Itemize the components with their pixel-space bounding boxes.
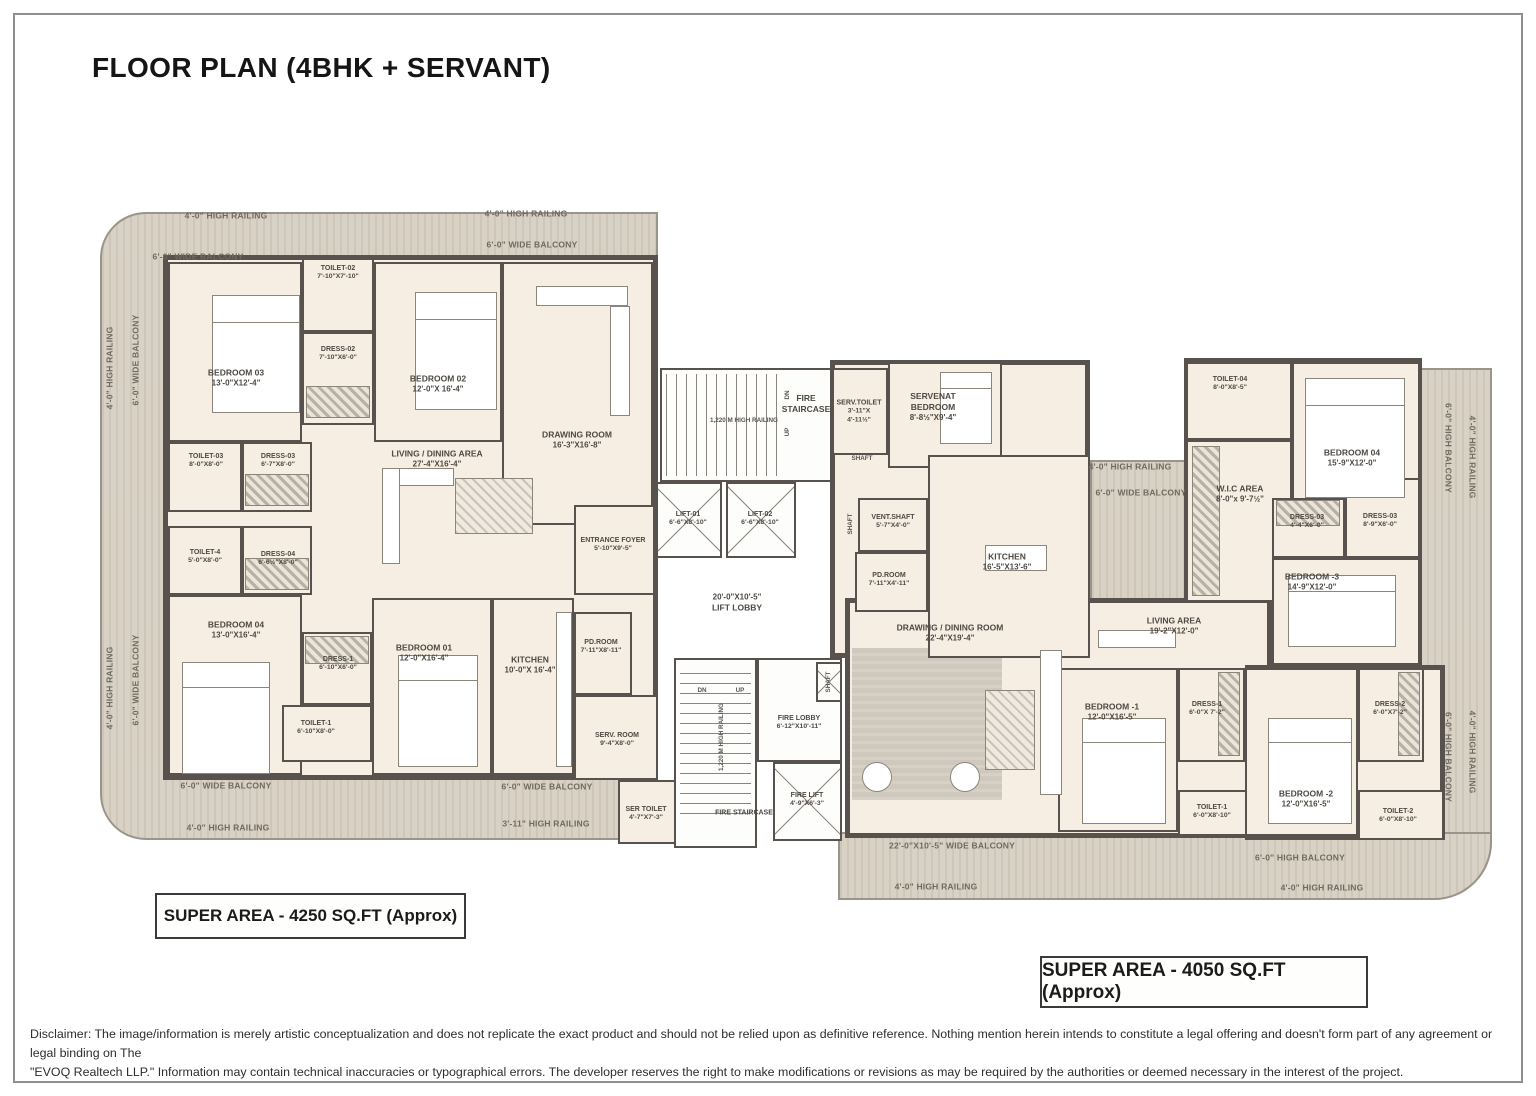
label-right-toilet-1: TOILET-16'-0"X8'-10" [1193,803,1231,821]
label-balcony-bottom-mid: 6'-0" WIDE BALCONY [502,781,593,792]
label-right-drawing-dining: DRAWING / DINING ROOM22'-4"X19'-4" [897,622,1004,643]
label-left-dress-04: DRESS-046'-6½"X8'-0" [258,550,298,568]
label-left-toilet-1: TOILET-16'-10"X8'-0" [297,719,335,737]
label-railing-top-mid: 4'-0" HIGH RAILING [485,208,568,219]
label-right-dress-1: DRESS-16'-0"X 7'-2" [1189,700,1225,718]
label-balcony-top-mid: 6'-0" WIDE BALCONY [487,239,578,250]
label-fire-staircase-bottom: FIRE STAIRCASE [714,808,774,817]
label-left-serv-room: SERV. ROOM9'-4"X8'-0" [595,731,639,749]
label-left-toilet-4: TOILET-45'-0"X8'-0" [188,548,222,566]
bed [398,655,478,767]
sofa [610,306,630,416]
bed [1305,378,1405,498]
label-balcony-mid-right: 6'-0" WIDE BALCONY [1096,487,1187,498]
label-shaft-mid: SHAFT [847,514,855,535]
label-right-vent-shaft: VENT.SHAFT5'-7"X4'-0" [871,513,914,531]
label-left-pd-room: PD.ROOM7'-11"X8'-11" [581,638,622,656]
label-railing-left-upper: 4'-0" HIGH RAILING [104,327,115,410]
label-railing-right-upper: 4'-0" HIGH RAILING [1466,416,1477,499]
label-right-bedroom-3: BEDROOM -314'-9"X12'-0" [1285,571,1339,592]
super-area-right-text: SUPER AREA - 4050 SQ.FT (Approx) [1042,960,1366,1004]
label-right-servant-bedroom: SERVENAT BEDROOM 8'-8½"X9'-4" [900,391,966,423]
label-fire-lobby: FIRE LOBBY6'-12"X10'-11" [777,714,822,732]
label-left-dress-03: DRESS-036'-7"X8'-0" [261,452,295,470]
super-area-left-text: SUPER AREA - 4250 SQ.FT (Approx) [164,906,457,926]
label-balcony-right-lower: 6'-0" HIGH BALCONY [1442,712,1453,802]
label-balcony-bottom-left: 6'-0" WIDE BALCONY [181,780,272,791]
label-left-bedroom-01: BEDROOM 0112'-0"X16'-4" [396,642,452,663]
armchair [950,762,980,792]
label-left-drawing-room: DRAWING ROOM16'-3"X16'-8" [542,429,612,450]
label-balcony-left-lower: 6'-0" WIDE BALCONY [130,635,141,726]
label-railing-mid-right: 4'-0" HIGH RAILING [1089,461,1172,472]
label-railing-1220-top: 1,220 M HIGH RAILING [710,417,778,425]
label-left-living-dining: LIVING / DINING AREA27'-4"X16'-4" [391,448,482,469]
wardrobe [306,386,370,418]
label-right-serv-toilet: SERV.TOILET 3'-11"X 4'-11½" [835,399,883,426]
label-dn-top: DN [784,390,792,399]
label-left-bedroom-04: BEDROOM 0413'-0"X16'-4" [208,619,264,640]
label-shaft-top: SHAFT [852,455,873,463]
label-lift-02: LIFT-026'-6"X8'-10" [741,510,779,528]
label-left-bedroom-02: BEDROOM 0212'-0"X 16'-4" [410,373,466,394]
sofa [536,286,628,306]
label-right-bedroom-2: BEDROOM -212'-0"X16'-5" [1279,788,1333,809]
label-railing-bottom-far-right: 4'-0" HIGH RAILING [1281,882,1364,893]
sofa [382,468,400,564]
label-left-dress-1: DRESS-16'-10"X6'-0" [319,655,357,673]
label-balcony-top-left: 6'-0" WIDE BALCONY [153,251,244,262]
dining-table [455,478,533,534]
label-right-pd-room: PD.ROOM7'-11"X4'-11" [869,571,910,589]
label-railing-311: 3'-11" HIGH RAILING [502,818,589,829]
label-up-top: UP [784,428,792,437]
label-left-toilet-02: TOILET-027'-10"X7'-10" [317,264,358,282]
label-railing-bottom-left: 4'-0" HIGH RAILING [187,822,270,833]
label-dn-bottom: DN [697,687,706,695]
label-right-dress-03a: DRESS-034'-4"X6'-0" [1290,513,1324,531]
label-railing-1220-bottom: 1,220 M HIGH RAILING [718,703,726,771]
label-right-wic-area: W.I.C AREA8'-0"x 9'-7½" [1216,483,1264,504]
label-left-kitchen: KITCHEN10'-0"X 16'-4" [505,654,556,675]
label-railing-left-lower: 4'-0" HIGH RAILING [104,647,115,730]
label-balcony-right-upper: 6'-0" HIGH BALCONY [1442,403,1453,493]
label-right-living-area: LIVING AREA19'-2"X12'-0" [1147,615,1201,636]
label-fire-lift: FIRE LIFT4'-9"X6'-3" [790,791,824,809]
label-lift-01: LIFT-016'-6"X8'-10" [669,510,707,528]
label-left-toilet-03: TOILET-038'-0"X8'-0" [189,452,224,470]
label-up-bottom: UP [736,687,745,695]
label-left-bedroom-03: BEDROOM 0313'-0"X12'-4" [208,367,264,388]
label-right-toilet-2: TOILET-26'-0"X8'-10" [1379,807,1417,825]
label-right-kitchen: KITCHEN16'-5"X13'-6" [983,551,1032,572]
label-railing-bottom-mid: 4'-0" HIGH RAILING [895,881,978,892]
label-left-ser-toilet: SER TOILET4'-7"X7'-3" [625,805,666,823]
bed [1082,718,1166,824]
label-right-bedroom-04: BEDROOM 0415'-9"X12'-0" [1324,447,1380,468]
kitchen-counter [556,612,572,767]
dining-table [985,690,1035,770]
disclaimer-line-1: Disclaimer: The image/information is mer… [30,1025,1510,1063]
label-left-dress-02: DRESS-027'-10"X6'-0" [319,345,357,363]
label-right-dress-03b: DRESS-038'-9"X6'-0" [1363,512,1397,530]
label-railing-top-left: 4'-0" HIGH RAILING [185,210,268,221]
disclaimer-line-2: "EVOQ Realtech LLP." Information may con… [30,1063,1510,1082]
wardrobe [245,474,309,506]
floor-plan-page: FLOOR PLAN (4BHK + SERVANT) [0,0,1536,1096]
bed [182,662,270,774]
super-area-right-box: SUPER AREA - 4050 SQ.FT (Approx) [1040,956,1368,1008]
label-right-toilet-04: TOILET-048'-0"X8'-5" [1213,375,1248,393]
label-railing-right-lower: 4'-0" HIGH RAILING [1466,711,1477,794]
sofa [1040,650,1062,795]
wardrobe [1192,446,1220,596]
right-unit-balcony-mid [1090,460,1188,608]
label-shaft-bottom: SHAFT [825,672,833,693]
page-title: FLOOR PLAN (4BHK + SERVANT) [92,52,551,84]
label-balcony-left-upper: 6'-0" WIDE BALCONY [130,315,141,406]
label-left-entrance-foyer: ENTRANCE FOYER5'-10"X9'-5" [581,536,646,554]
label-balcony-22ft: 22'-0"X10'-5" WIDE BALCONY [889,840,1015,851]
armchair [862,762,892,792]
room-right-toilet-04 [1186,362,1292,440]
label-right-dress-2: DRESS-26'-0"X7'-2" [1373,700,1407,718]
disclaimer: Disclaimer: The image/information is mer… [30,1025,1510,1083]
label-balcony-bottom-right: 6'-0" HIGH BALCONY [1255,852,1345,863]
label-right-bedroom-1: BEDROOM -112'-0"X16'-5" [1085,701,1139,722]
bed [212,295,300,413]
label-lift-lobby: 20'-0"X10'-5"LIFT LOBBY [712,592,762,613]
super-area-left-box: SUPER AREA - 4250 SQ.FT (Approx) [155,893,466,939]
